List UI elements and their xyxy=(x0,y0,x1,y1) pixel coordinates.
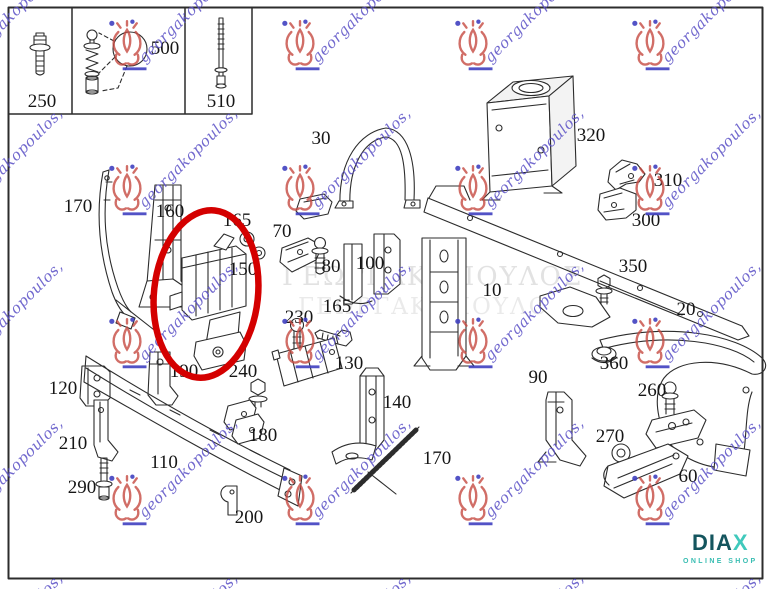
part-label-130: 130 xyxy=(335,353,364,375)
diax-logo-wordmark: DIAX xyxy=(683,532,758,554)
part-label-290: 290 xyxy=(68,477,97,499)
part-320-drawing xyxy=(482,76,576,200)
logo-subtitle: ONLINE SHOP xyxy=(683,558,758,565)
part-label-30: 30 xyxy=(312,128,331,150)
part-label-170-rod: 170 xyxy=(423,448,452,470)
part-510-drawing xyxy=(215,18,227,88)
part-label-360: 360 xyxy=(600,353,629,375)
part-label-500: 500 xyxy=(151,38,180,60)
part-label-120: 120 xyxy=(49,378,78,400)
part-label-100: 100 xyxy=(356,253,385,275)
part-label-90: 90 xyxy=(529,367,548,389)
part-label-200: 200 xyxy=(235,507,264,529)
part-label-160: 160 xyxy=(156,201,185,223)
part-90-drawing xyxy=(538,392,586,466)
part-300-drawing xyxy=(598,188,636,220)
part-label-210: 210 xyxy=(59,433,88,455)
part-label-300: 300 xyxy=(632,210,661,232)
part-210-drawing xyxy=(94,400,118,461)
logo-text-dia: DIA xyxy=(692,530,733,555)
part-label-70: 70 xyxy=(273,221,292,243)
diagram-line-art xyxy=(0,0,774,589)
part-label-165-top: 165 xyxy=(223,210,252,232)
part-label-240: 240 xyxy=(229,361,258,383)
diax-shop-logo[interactable]: DIAX ONLINE SHOP xyxy=(683,532,758,565)
part-label-270: 270 xyxy=(596,426,625,448)
part-label-250: 250 xyxy=(28,91,57,113)
part-label-150: 150 xyxy=(229,259,258,281)
part-label-320: 320 xyxy=(577,125,606,147)
part-label-260: 260 xyxy=(638,380,667,402)
part-label-510: 510 xyxy=(207,91,236,113)
part-140-drawing xyxy=(332,368,384,464)
part-label-60: 60 xyxy=(679,466,698,488)
part-label-10: 10 xyxy=(483,280,502,302)
part-label-350: 350 xyxy=(619,256,648,278)
part-130-drawing xyxy=(272,338,342,386)
part-label-230: 230 xyxy=(285,307,314,329)
part-label-170-side: 170 xyxy=(64,196,93,218)
part-label-310: 310 xyxy=(654,170,683,192)
parts-diagram: ΓΕΩΡΓΑΚΟΠΟΥΛΟΣ ΓΕΩΡΓΑΚΟΠΟΥΛΟΣ xyxy=(0,0,774,589)
part-290-drawing xyxy=(96,458,112,500)
part-label-180: 180 xyxy=(249,425,278,447)
part-label-140: 140 xyxy=(383,392,412,414)
part-label-165-mid: 165 xyxy=(323,296,352,318)
part-label-190: 190 xyxy=(170,361,199,383)
part-label-80: 80 xyxy=(322,256,341,278)
logo-text-x: X xyxy=(733,530,749,555)
part-500-drawing xyxy=(84,30,147,94)
part-250-drawing xyxy=(30,33,50,75)
part-label-110: 110 xyxy=(150,452,178,474)
part-label-20: 20 xyxy=(677,299,696,321)
part-310-drawing xyxy=(608,160,645,190)
